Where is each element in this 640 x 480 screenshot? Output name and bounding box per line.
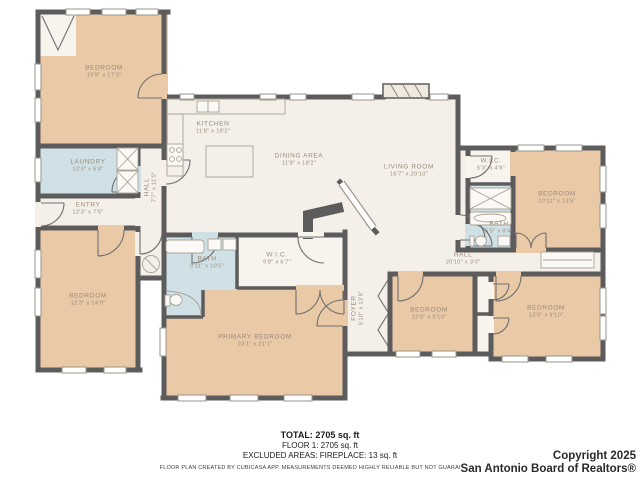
floorplan-drawing	[0, 0, 640, 480]
copyright-line1: Copyright 2025	[461, 450, 636, 463]
fireplace-hatch	[383, 84, 429, 98]
floorplan-page: BEDROOM 15'9" x 17'3" LAUNDRY 12'3" x 6'…	[0, 0, 640, 480]
wic-right-floor	[468, 148, 513, 186]
room-fills	[38, 12, 603, 398]
foyer-floor	[345, 232, 390, 354]
bedroom-right-floor	[513, 148, 603, 250]
hall-left-floor	[138, 146, 165, 278]
bedroom-mid-floor	[390, 274, 475, 354]
wic-primary-floor	[237, 238, 345, 288]
bedroom-left-floor	[38, 228, 138, 370]
floor-area: FLOOR 1: 2705 sq. ft	[0, 441, 640, 450]
copyright: Copyright 2025 San Antonio Board of Real…	[461, 450, 636, 476]
copyright-line2: San Antonio Board of Realtors®	[461, 463, 636, 476]
total-area: TOTAL: 2705 sq. ft	[0, 430, 640, 440]
bedroom-br-floor	[491, 274, 603, 359]
